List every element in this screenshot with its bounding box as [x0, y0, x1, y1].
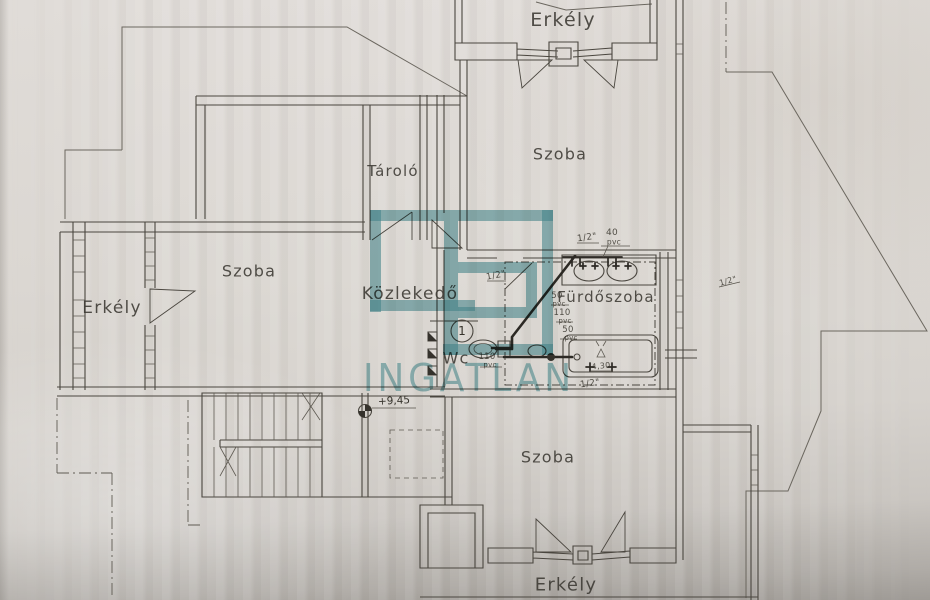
washbasin-counter [562, 255, 656, 285]
fixture-number-circle [451, 320, 473, 342]
site-outline [57, 2, 927, 598]
level-marker [359, 405, 372, 418]
chimney-dashed-box [390, 430, 443, 478]
valve-symbol [547, 353, 555, 361]
hatched-markers [428, 332, 437, 375]
walls [57, 0, 758, 600]
window-ticks [73, 44, 758, 485]
bathroom-dashed-wall [505, 262, 655, 385]
floorplan-photo: Erkély Szoba Tároló Szoba Erkély Közleke… [0, 0, 930, 600]
washbasin-right [607, 261, 637, 281]
door-swings [150, 60, 625, 552]
stair-direction-marks [220, 393, 320, 476]
plumbing-pipes [492, 256, 631, 371]
washbasin-left [574, 261, 604, 281]
shower-symbol [596, 341, 606, 357]
staircase [202, 393, 322, 497]
tap-crosses [580, 263, 631, 367]
leader-lines [372, 243, 740, 408]
floorplan-drawing [0, 0, 930, 600]
bathroom-fixtures [469, 255, 658, 377]
floor-drain [528, 345, 546, 357]
